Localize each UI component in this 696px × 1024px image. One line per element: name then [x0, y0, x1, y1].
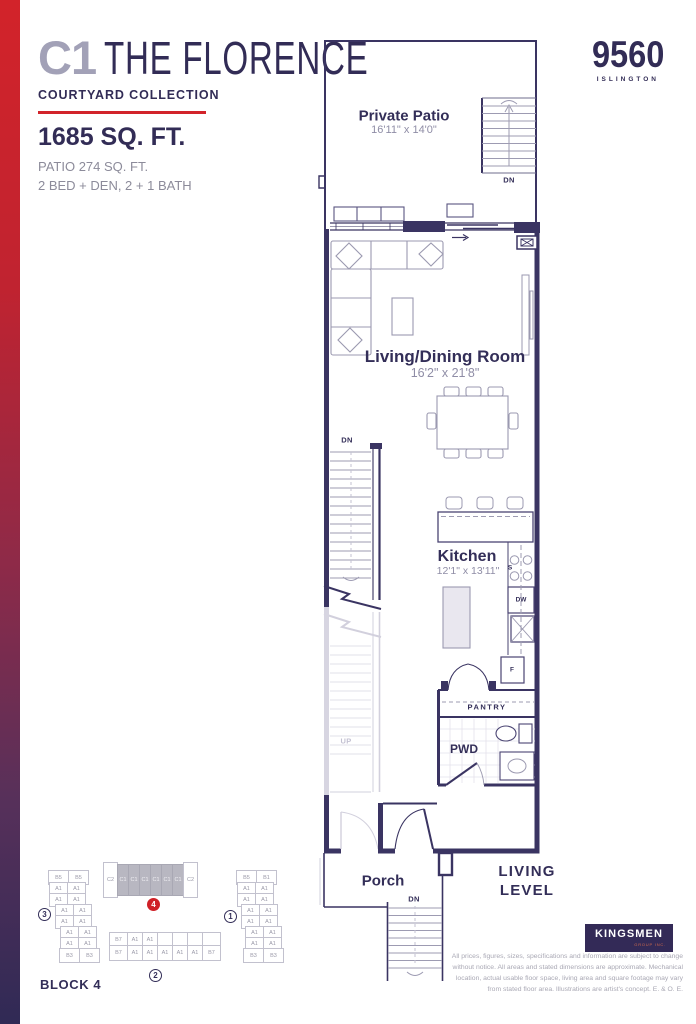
- keyplan-cell: B3: [59, 948, 80, 963]
- fridge-label: F: [510, 667, 514, 674]
- keyplan-row: B7 A1 A1 A1 A1 A1 B7: [110, 945, 221, 961]
- keyplan-row: B3B3: [60, 948, 100, 963]
- disclaimer-line: from stated floor area. Illustrations ar…: [433, 984, 683, 995]
- mech-symbol: [517, 236, 537, 249]
- builder-logo-text: KINGSMEN: [595, 929, 663, 940]
- room-label-porch: Porch: [362, 873, 405, 890]
- room-dims-kitchen: 12'1" x 13'11": [437, 565, 500, 577]
- keyplan-cell: A1: [157, 945, 173, 961]
- level-line1: LIVING: [489, 863, 565, 882]
- dining-set: [427, 387, 518, 458]
- keyplan-cell: B7: [202, 945, 221, 961]
- builder-logo-sub: GROUP INC.: [634, 942, 666, 947]
- keyplan-cell: B7: [109, 945, 128, 961]
- coffee-table: [392, 298, 413, 335]
- stair-up-label: UP: [340, 737, 351, 746]
- patio-stair: [482, 98, 536, 173]
- room-label-pantry: PANTRY: [468, 703, 507, 712]
- sink-label: S: [508, 565, 512, 572]
- room-label-kitchen: Kitchen: [438, 548, 497, 566]
- keyplan-cell: C2: [183, 862, 198, 898]
- keyplan-badge-3: 3: [38, 908, 51, 921]
- keyplan-cell: A1: [172, 945, 188, 961]
- level-line2: LEVEL: [489, 882, 565, 901]
- entry: [378, 803, 437, 849]
- keyplan-cell: A1: [127, 945, 143, 961]
- keyplan-cell: B3: [79, 948, 100, 963]
- window-band: [330, 221, 540, 241]
- builder-logo: KINGSMEN GROUP INC.: [585, 924, 673, 952]
- interior-stair: [324, 443, 382, 609]
- stair-dn-label-patio: DN: [503, 176, 514, 185]
- sofa: [331, 241, 443, 355]
- room-label-private-patio: Private Patio: [359, 108, 450, 125]
- keyplan-cell: A1: [142, 945, 158, 961]
- room-dims-private-patio: 16'11" x 14'0": [371, 124, 437, 136]
- block-caption: BLOCK 4: [40, 977, 101, 992]
- keyplan-badge-4: 4: [147, 898, 160, 911]
- keyplan-badge-2: 2: [149, 969, 162, 982]
- room-dims-living-dining: 16'2" x 21'8": [411, 366, 480, 380]
- keyplan-cell: C2: [103, 862, 118, 898]
- keyplan-cell: B3: [243, 948, 264, 963]
- disclaimer-line: location, actual usable floor space, liv…: [433, 973, 683, 984]
- slider-arrow-icon: [452, 235, 468, 241]
- disclaimer-line: without notice. All areas and stated dim…: [433, 962, 683, 973]
- level-label: LIVING LEVEL: [489, 863, 565, 901]
- dishwasher-label: DW: [516, 597, 527, 604]
- disclaimer-line: All prices, figures, sizes, specificatio…: [433, 951, 683, 962]
- keyplan-badge-1: 1: [224, 910, 237, 923]
- keyplan-cell: A1: [187, 945, 203, 961]
- kitchen-fixtures: [438, 497, 534, 683]
- patio-planters: [334, 204, 473, 221]
- disclaimer: All prices, figures, sizes, specificatio…: [433, 951, 683, 995]
- tv-console: [522, 275, 533, 355]
- lower-stair: [324, 607, 381, 849]
- floorplan-sheet: C1 THE FLORENCE COURTYARD COLLECTION 168…: [0, 0, 696, 1024]
- keyplan-block4: C2 C1 C1 C1 C1 C1 C1 C2: [104, 862, 198, 898]
- keyplan-cell: B3: [263, 948, 284, 963]
- stair-dn-label-porch: DN: [408, 895, 419, 904]
- room-label-living-dining: Living/Dining Room: [365, 347, 526, 367]
- room-label-pwd: PWD: [450, 742, 478, 756]
- stair-dn-label-interior: DN: [341, 436, 352, 445]
- keyplan-row: B3B3: [244, 948, 284, 963]
